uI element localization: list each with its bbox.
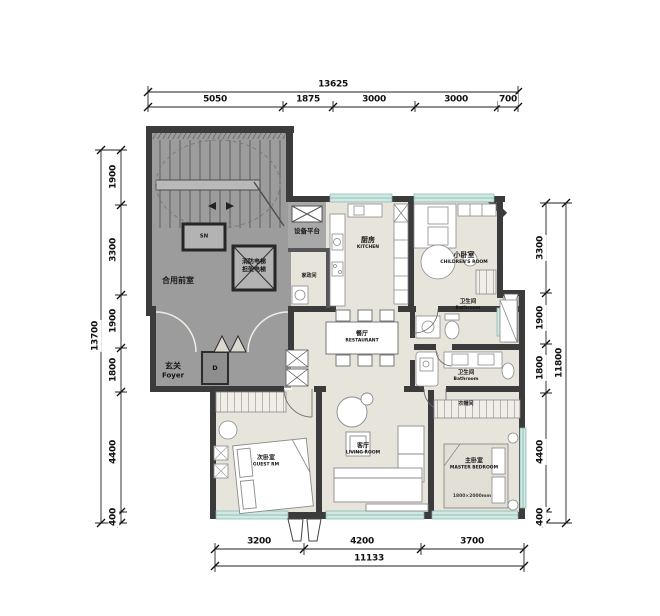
dim-left-overall: 13700 bbox=[90, 320, 101, 352]
living-room-cn: 客厅 bbox=[346, 442, 380, 450]
label-small-bedroom: 小卧室 CHILDREN'S ROOM bbox=[440, 251, 487, 265]
foyer-en: Foyer bbox=[162, 372, 184, 381]
dim-left-seg-1: 3300 bbox=[108, 237, 119, 263]
small-bedroom-en: CHILDREN'S ROOM bbox=[440, 260, 487, 266]
master-bedroom-en: MASTER BEDROOM bbox=[450, 465, 498, 471]
kitchen-en: KITCHEN bbox=[357, 245, 379, 251]
bathroom-top-cn: 卫生间 bbox=[456, 299, 481, 306]
dining-en: RESTAURANT bbox=[345, 338, 378, 344]
dining-cn: 餐厅 bbox=[345, 330, 378, 338]
dim-left-seg-5: 400 bbox=[108, 507, 119, 527]
dim-top-seg-4: 700 bbox=[498, 94, 518, 105]
label-master-bedroom: 主卧室 MASTER BEDROOM bbox=[450, 457, 498, 470]
label-equipment-platform: 设备平台 bbox=[294, 227, 320, 235]
guest-bedroom-en: GUEST RM bbox=[253, 462, 279, 468]
small-bedroom-cn: 小卧室 bbox=[440, 251, 487, 260]
bathroom-mid-cn: 卫生间 bbox=[454, 370, 479, 377]
fire-elevator-line2: 担架电梯 bbox=[242, 266, 266, 274]
dim-bottom-overall: 11133 bbox=[353, 553, 385, 564]
dim-left-seg-2: 1900 bbox=[108, 308, 119, 334]
kitchen-cn: 厨房 bbox=[357, 236, 379, 245]
label-guest-bedroom: 次卧室 GUEST RM bbox=[253, 454, 279, 467]
foyer-cn: 玄关 bbox=[162, 362, 184, 372]
living-room-en: LIVING ROOM bbox=[346, 450, 380, 456]
housekeeping-fixtures bbox=[292, 286, 308, 304]
master-bedroom-cn: 主卧室 bbox=[450, 457, 498, 465]
label-foyer: 玄关 Foyer bbox=[162, 362, 184, 381]
floor-plan-page: { "dimensions": { "top": {"overall": "13… bbox=[0, 0, 660, 616]
dim-left-seg-0: 1900 bbox=[108, 164, 119, 190]
dim-bottom-seg-1: 4200 bbox=[349, 536, 375, 547]
label-bathroom-top: 卫生间 Bathroom bbox=[456, 299, 481, 312]
floor-plan-drawing bbox=[0, 0, 660, 616]
dim-right-seg-3: 4400 bbox=[535, 439, 546, 465]
bathroom-top-en: Bathroom bbox=[456, 306, 481, 312]
dim-right-seg-0: 3300 bbox=[535, 235, 546, 261]
bathroom-mid-en: Bathroom bbox=[454, 377, 479, 383]
label-living-room: 客厅 LIVING ROOM bbox=[346, 442, 380, 455]
equipment-platform-vent bbox=[292, 206, 322, 222]
dim-top-seg-1: 1875 bbox=[295, 94, 321, 105]
dim-left-seg-4: 4400 bbox=[108, 439, 119, 465]
dim-bottom-seg-2: 3700 bbox=[459, 536, 485, 547]
dim-right-seg-2: 1800 bbox=[535, 355, 546, 381]
label-elevator: SN bbox=[200, 234, 209, 241]
dim-left-seg-3: 1800 bbox=[108, 357, 119, 383]
dim-right-overall: 11800 bbox=[554, 347, 565, 379]
label-dining: 餐厅 RESTAURANT bbox=[345, 330, 378, 343]
label-shared-vestibule: 合用前室 bbox=[162, 276, 194, 286]
dim-top-seg-0: 5050 bbox=[202, 94, 228, 105]
dim-top-overall: 13625 bbox=[317, 79, 349, 90]
label-cloakroom: 衣帽间 bbox=[458, 401, 473, 407]
label-entry-door: D bbox=[212, 364, 217, 372]
fire-elevator-line1: 消防电梯 bbox=[242, 259, 266, 267]
label-fire-elevator: 消防电梯 担架电梯 bbox=[242, 259, 266, 274]
dim-top-seg-3: 3000 bbox=[443, 94, 469, 105]
guest-bedroom-cn: 次卧室 bbox=[253, 454, 279, 462]
dim-right-seg-4: 400 bbox=[535, 507, 546, 527]
label-bathroom-mid: 卫生间 Bathroom bbox=[454, 370, 479, 383]
label-housekeeping: 家政间 bbox=[301, 273, 316, 279]
dim-right-seg-1: 1900 bbox=[535, 305, 546, 331]
label-master-bed-size: 1800×2000mm bbox=[453, 494, 491, 500]
dim-bottom-seg-0: 3200 bbox=[246, 536, 272, 547]
label-kitchen: 厨房 KITCHEN bbox=[357, 236, 379, 250]
dim-top-seg-2: 3000 bbox=[361, 94, 387, 105]
